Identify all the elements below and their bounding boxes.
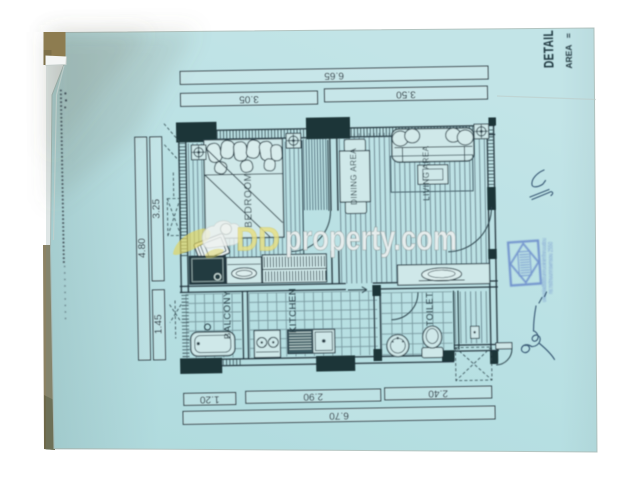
svg-text:KITCHEN: KITCHEN bbox=[287, 288, 299, 333]
svg-text:LIVING AREA: LIVING AREA bbox=[421, 145, 431, 201]
svg-text:=: = bbox=[563, 33, 573, 38]
svg-text:DETAIL: DETAIL bbox=[540, 30, 557, 68]
svg-text:2.40: 2.40 bbox=[428, 387, 448, 398]
svg-text:ns:nstnuunnswnsou 2550: ns:nstnuunnswnsou 2550 bbox=[549, 242, 555, 294]
svg-text:6.70: 6.70 bbox=[329, 409, 349, 420]
svg-text:AREA: AREA bbox=[563, 45, 573, 69]
svg-text:DINING AREA: DINING AREA bbox=[349, 148, 359, 205]
svg-text:BALCONY: BALCONY bbox=[222, 290, 234, 339]
svg-text:1.20: 1.20 bbox=[199, 393, 219, 404]
svg-text:TOILET: TOILET bbox=[424, 292, 435, 327]
svg-text:4.80: 4.80 bbox=[137, 238, 148, 258]
svg-text:3.50: 3.50 bbox=[396, 88, 416, 99]
svg-text:DD: DD bbox=[236, 221, 280, 258]
svg-text:3.05: 3.05 bbox=[239, 93, 259, 104]
svg-text:property.com: property.com bbox=[285, 219, 457, 258]
svg-text:2.90: 2.90 bbox=[303, 390, 323, 401]
svg-text:6.65: 6.65 bbox=[324, 69, 344, 80]
svg-text:3.25: 3.25 bbox=[151, 198, 162, 218]
svg-text:1.45: 1.45 bbox=[153, 314, 164, 334]
svg-text:uwuniadtddsunnuoinimfnnuudou: uwuniadtddsunnuoinimfnnuudou bbox=[542, 238, 548, 302]
